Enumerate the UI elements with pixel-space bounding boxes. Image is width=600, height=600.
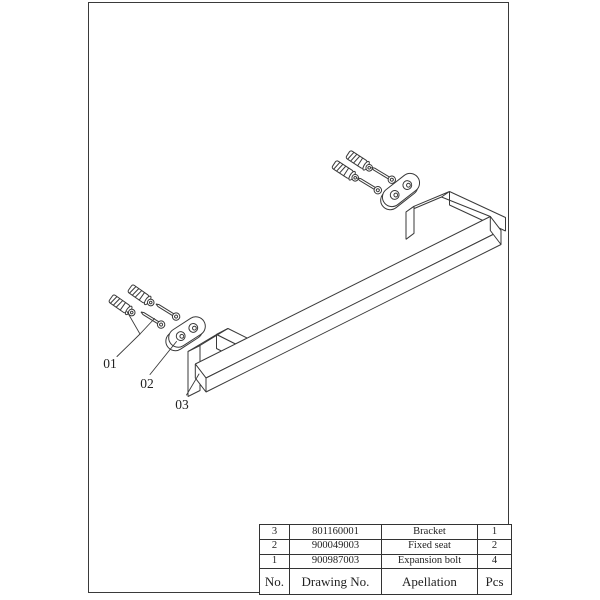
towel-bar-bracket — [188, 192, 506, 397]
bracket-right-post-face — [406, 206, 414, 239]
table-header-no: No. — [260, 569, 290, 594]
table-cell-pcs: 1 — [478, 525, 511, 540]
table-cell-apellation: Expansion bolt — [382, 555, 478, 570]
table-cell-drawing-no: 900987003 — [290, 555, 382, 570]
callout-01: 01 — [103, 356, 117, 371]
bracket-bar-front-face — [206, 231, 501, 393]
table-cell-pcs: 4 — [478, 555, 511, 570]
expansion-bolt-screw-4 — [139, 309, 166, 330]
table-cell-apellation: Fixed seat — [382, 540, 478, 555]
expansion-bolt-screw-3 — [154, 301, 181, 322]
drawing-sheet: 01 02 03 3 801160001 Bracket 1 2 9000490… — [0, 0, 600, 600]
table-cell-pcs: 2 — [478, 540, 511, 555]
exploded-view-drawing: 01 02 03 — [0, 0, 600, 600]
table-cell-drawing-no: 801160001 — [290, 525, 382, 540]
expansion-bolt-screw-1 — [370, 164, 397, 184]
expansion-bolt-anchor-3 — [127, 284, 156, 309]
table-cell-drawing-no: 900049003 — [290, 540, 382, 555]
table-cell-no: 2 — [260, 540, 290, 555]
table-cell-no: 3 — [260, 525, 290, 540]
table-header-apellation: Apellation — [382, 569, 478, 594]
parts-table: 3 801160001 Bracket 1 2 900049003 Fixed … — [259, 524, 512, 595]
leader-01 — [117, 312, 140, 357]
callout-02: 02 — [140, 376, 154, 391]
fixed-seat-bottom-left — [161, 313, 209, 354]
table-cell-no: 1 — [260, 555, 290, 570]
table-header-drawing-no: Drawing No. — [290, 569, 382, 594]
callout-03: 03 — [175, 397, 189, 412]
table-header-pcs: Pcs — [478, 569, 511, 594]
expansion-bolt-screw-2 — [356, 175, 383, 195]
table-cell-apellation: Bracket — [382, 525, 478, 540]
expansion-bolt-anchor-4 — [108, 294, 137, 319]
bracket-bar-top-face — [195, 217, 501, 379]
leader-01-branch — [140, 319, 155, 335]
leader-02 — [150, 342, 177, 375]
